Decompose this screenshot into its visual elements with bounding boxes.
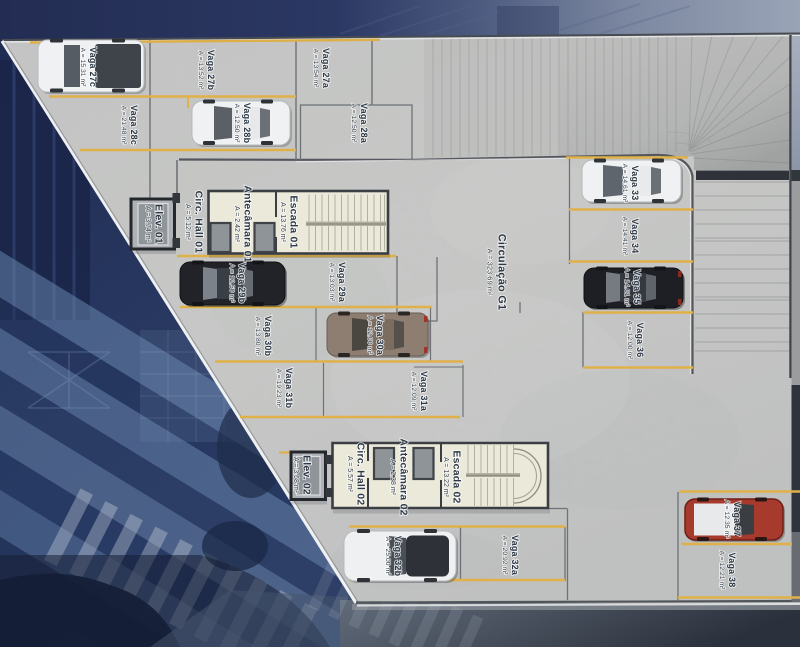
svg-text:A = 20.92 m²: A = 20.92 m² — [501, 536, 508, 575]
svg-text:Vaga 32a: Vaga 32a — [510, 535, 520, 576]
svg-text:Circulação G1: Circulação G1 — [496, 234, 508, 311]
svg-text:A = 25.00 m²: A = 25.00 m² — [384, 537, 391, 576]
svg-text:A = 3.68 m²: A = 3.68 m² — [292, 457, 299, 494]
svg-text:A = 12.35 m²: A = 12.35 m² — [723, 500, 730, 539]
svg-text:A = 19.23 m²: A = 19.23 m² — [275, 369, 282, 408]
svg-text:A = 12.21 m²: A = 12.21 m² — [718, 551, 725, 590]
svg-text:Vaga 28a: Vaga 28a — [359, 103, 369, 144]
svg-text:Escada 01: Escada 01 — [288, 195, 300, 248]
svg-text:Vaga 30b: Vaga 30b — [263, 316, 273, 357]
svg-text:A = 13.52 m²: A = 13.52 m² — [197, 51, 204, 90]
svg-text:A = 5.12 m²: A = 5.12 m² — [184, 204, 191, 241]
svg-text:A = 13.80 m²: A = 13.80 m² — [254, 317, 261, 356]
svg-text:Elev. 01: Elev. 01 — [153, 204, 165, 244]
svg-text:Circ. Hall 01: Circ. Hall 01 — [193, 191, 205, 254]
svg-text:A = 12.50 m²: A = 12.50 m² — [228, 264, 235, 303]
svg-text:A = 12.00 m²: A = 12.00 m² — [626, 321, 633, 360]
svg-text:A = 12.50 m²: A = 12.50 m² — [233, 104, 240, 143]
svg-text:Vaga 27b: Vaga 27b — [206, 50, 216, 91]
svg-text:Vaga 37: Vaga 37 — [732, 502, 742, 537]
svg-text:Elev. 02: Elev. 02 — [301, 455, 313, 495]
svg-text:Escada 02: Escada 02 — [451, 450, 463, 503]
svg-text:A = 323.69 m²: A = 323.69 m² — [486, 249, 495, 296]
svg-text:A = 13.54 m²: A = 13.54 m² — [312, 49, 319, 88]
svg-text:A = 3.74 m²: A = 3.74 m² — [144, 206, 151, 243]
svg-text:Circ. Hall 02: Circ. Hall 02 — [355, 443, 367, 506]
svg-text:Vaga 27c: Vaga 27c — [88, 47, 98, 87]
svg-text:Vaga 29b: Vaga 29b — [237, 263, 247, 304]
svg-text:Vaga 33: Vaga 33 — [630, 166, 640, 201]
svg-text:A = 2.38 m²: A = 2.38 m² — [389, 459, 396, 496]
svg-text:A = 13.03 m²: A = 13.03 m² — [328, 263, 335, 302]
svg-text:A = 13.76 m²: A = 13.76 m² — [279, 202, 286, 243]
svg-text:Vaga 29a: Vaga 29a — [337, 262, 347, 303]
svg-text:Vaga 38: Vaga 38 — [727, 553, 737, 588]
svg-text:A = 13.22 m²: A = 13.22 m² — [442, 457, 449, 498]
svg-text:A = 12.00 m²: A = 12.00 m² — [366, 316, 373, 355]
svg-text:A = 2.42 m²: A = 2.42 m² — [233, 206, 240, 243]
svg-text:A = 14.61 m²: A = 14.61 m² — [621, 164, 628, 203]
svg-text:Vaga 32b: Vaga 32b — [393, 536, 403, 577]
svg-text:A = 12.09 m²: A = 12.09 m² — [410, 372, 417, 411]
svg-text:Vaga 27a: Vaga 27a — [321, 48, 331, 89]
svg-text:A = 15.31 m²: A = 15.31 m² — [79, 48, 86, 87]
svg-text:Vaga 28b: Vaga 28b — [242, 103, 252, 144]
svg-text:Antecâmara 02: Antecâmara 02 — [398, 438, 410, 515]
svg-text:A = 21.48 m²: A = 21.48 m² — [120, 106, 127, 145]
svg-text:Vaga 34: Vaga 34 — [630, 219, 640, 254]
svg-text:Vaga 31a: Vaga 31a — [419, 371, 429, 412]
svg-text:A = 14.41 m²: A = 14.41 m² — [621, 217, 628, 256]
svg-text:A = 12.50 m²: A = 12.50 m² — [350, 104, 357, 143]
svg-text:Antecâmara 01: Antecâmara 01 — [242, 185, 254, 262]
svg-text:Vaga 28c: Vaga 28c — [129, 105, 139, 145]
svg-text:A = 14.01 m²: A = 14.01 m² — [623, 268, 630, 307]
svg-text:A = 5.57 m²: A = 5.57 m² — [346, 456, 353, 493]
svg-text:Vaga 36: Vaga 36 — [635, 323, 645, 358]
svg-text:Vaga 35: Vaga 35 — [632, 270, 642, 305]
svg-text:Vaga 31b: Vaga 31b — [284, 368, 294, 409]
svg-text:Vaga 30a: Vaga 30a — [375, 315, 385, 356]
